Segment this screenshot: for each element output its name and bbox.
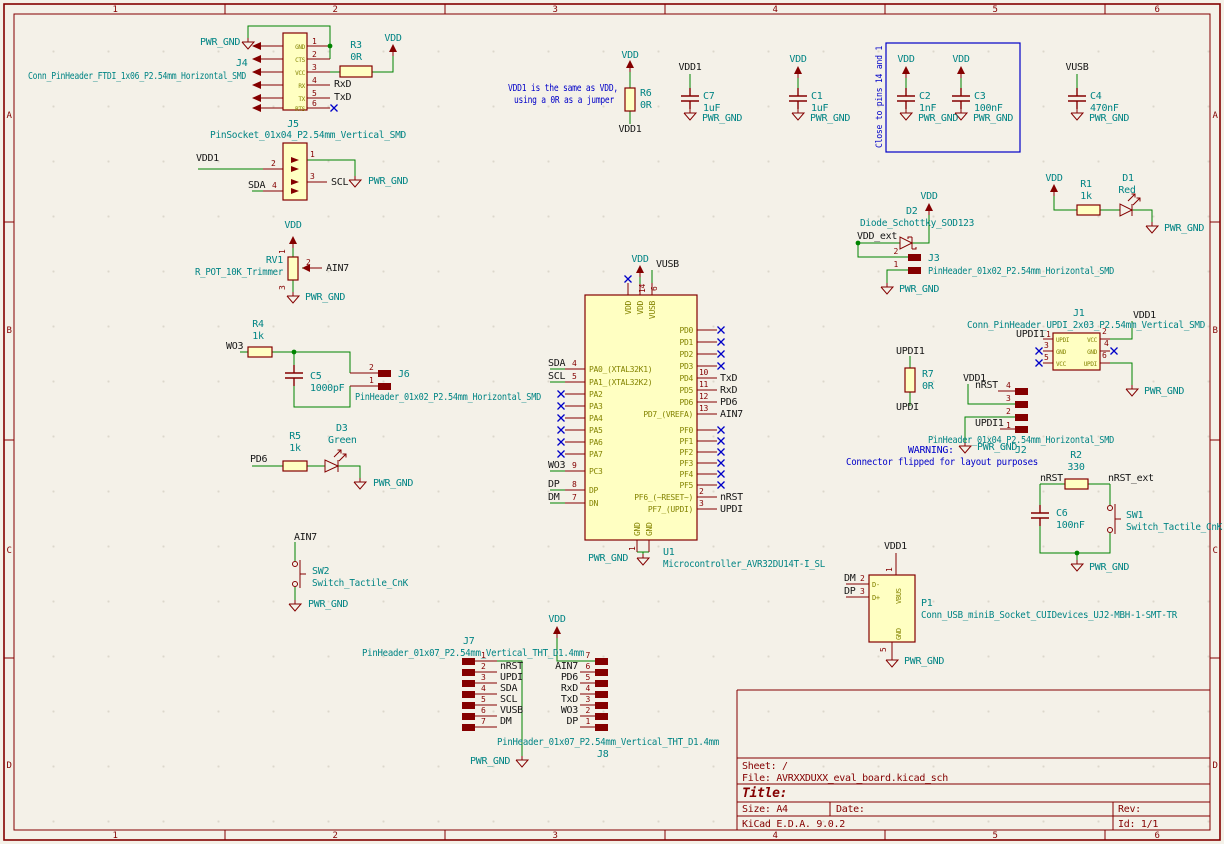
- power-label[interactable]: PWR_GND: [368, 176, 408, 187]
- pin-number: 1: [1046, 330, 1051, 339]
- border-ref: 4: [772, 5, 777, 15]
- power-label[interactable]: PWR_GND: [810, 113, 850, 124]
- net-label[interactable]: DM: [500, 716, 512, 727]
- net-label[interactable]: AIN7: [720, 409, 743, 420]
- pin-number: 3: [278, 285, 287, 290]
- id-field: Id: 1/1: [1118, 819, 1158, 830]
- mcu-u1[interactable]: [565, 283, 717, 552]
- led-d3[interactable]: [325, 450, 346, 472]
- wire-junction[interactable]: [328, 44, 333, 49]
- value-r2[interactable]: 330: [1067, 462, 1084, 473]
- no-connect-icon[interactable]: [718, 460, 725, 467]
- footprint-p1[interactable]: Conn_USB_miniB_Socket_CUIDevices_UJ2-MBH…: [921, 610, 1178, 621]
- net-label[interactable]: VDD1: [1133, 310, 1156, 321]
- no-connect-icon[interactable]: [558, 391, 565, 398]
- net-label[interactable]: nRST: [500, 661, 523, 672]
- pin-number: 1: [310, 150, 315, 159]
- gnd-symbol[interactable]: [1146, 222, 1158, 233]
- pin-number: 3: [699, 499, 704, 508]
- pin-number: 9: [572, 461, 577, 470]
- net-label[interactable]: PD6: [720, 397, 737, 408]
- net-label[interactable]: UPDI: [500, 672, 523, 683]
- note[interactable]: using a 0R as a jumper: [514, 95, 614, 106]
- rev-field: Rev:: [1118, 804, 1141, 815]
- pin-number: 10: [699, 368, 709, 377]
- net-label[interactable]: TxD: [561, 694, 578, 705]
- wire-junction[interactable]: [292, 350, 297, 355]
- pin-name: PA5: [589, 426, 603, 435]
- vdd-symbol[interactable]: [389, 44, 397, 56]
- pin-name: GND: [295, 44, 306, 51]
- border-ref: 4: [772, 831, 777, 841]
- power-label[interactable]: PWR_GND: [305, 292, 345, 303]
- resistor-r7[interactable]: [905, 368, 915, 392]
- no-connect-icon[interactable]: [331, 105, 338, 112]
- capacitor-c6[interactable]: [1031, 505, 1049, 526]
- footprint-j3[interactable]: PinHeader_01x02_P2.54mm_Horizontal_SMD: [928, 266, 1114, 277]
- resistor-r6[interactable]: [625, 88, 635, 111]
- capacitor-c1[interactable]: [789, 88, 807, 109]
- connector-j1[interactable]: [1043, 333, 1110, 370]
- gnd-symbol[interactable]: [516, 756, 528, 767]
- note[interactable]: Connector flipped for layout purposes: [846, 457, 1038, 468]
- value-c5[interactable]: 1000pF: [310, 383, 345, 394]
- border-ref: D: [1212, 761, 1217, 771]
- ref-r5[interactable]: R5: [289, 431, 301, 442]
- pin-name: PA0_(XTAL32K1): [589, 365, 652, 374]
- power-label[interactable]: VDD: [920, 191, 937, 202]
- schematic-page: Sheet: / File: AVRXXDUXX_eval_board.kica…: [0, 0, 1224, 844]
- value-d2[interactable]: Diode_Schottky_SOD123: [860, 218, 974, 229]
- power-label[interactable]: PWR_GND: [1144, 386, 1184, 397]
- gnd-symbol[interactable]: [289, 600, 301, 611]
- net-label[interactable]: nRST: [720, 492, 743, 503]
- ref-j8[interactable]: J8: [597, 749, 609, 760]
- net-label[interactable]: WO3: [226, 341, 243, 352]
- note[interactable]: WARNING:: [908, 445, 954, 456]
- pin-name: VBUS: [895, 588, 903, 604]
- no-connect-icon[interactable]: [558, 427, 565, 434]
- net-label[interactable]: nRST: [1040, 473, 1063, 484]
- led-d1[interactable]: [1120, 194, 1140, 216]
- connector-j7[interactable]: [462, 658, 497, 731]
- net-label[interactable]: TxD: [720, 373, 737, 384]
- potentiometer-rv1[interactable]: [288, 257, 322, 280]
- border-ref: 1: [112, 831, 117, 841]
- ref-r3[interactable]: R3: [350, 40, 362, 51]
- net-label[interactable]: SCL: [500, 694, 517, 705]
- capacitor-c5[interactable]: [285, 365, 303, 386]
- pin-name: RX: [298, 83, 305, 90]
- pin-name: PD3: [679, 362, 693, 371]
- net-label[interactable]: SDA: [548, 358, 565, 369]
- ref-c7[interactable]: C7: [703, 91, 715, 102]
- footprint-j4[interactable]: Conn_PinHeader_FTDI_1x06_P2.54mm_Horizon…: [28, 71, 246, 82]
- value-sw2[interactable]: Switch_Tactile_CnK: [312, 578, 408, 589]
- power-label[interactable]: PWR_GND: [899, 284, 939, 295]
- pin-number: 11: [699, 380, 709, 389]
- no-connect-icon[interactable]: [718, 339, 725, 346]
- note[interactable]: VDD1 is the same as VDD,: [508, 83, 618, 94]
- gnd-symbol[interactable]: [684, 109, 696, 120]
- pin-name: GND: [1056, 349, 1067, 356]
- ref-r7[interactable]: R7: [922, 369, 934, 380]
- value-r1[interactable]: 1k: [1080, 191, 1092, 202]
- value-d1[interactable]: Red: [1118, 185, 1135, 196]
- pin-number: 2: [860, 574, 865, 583]
- pin-number: 2: [312, 50, 317, 59]
- no-connect-icon[interactable]: [1036, 348, 1043, 355]
- ref-c4[interactable]: C4: [1090, 91, 1102, 102]
- net-label[interactable]: UPDI1: [975, 418, 1004, 429]
- ref-r4[interactable]: R4: [252, 319, 264, 330]
- pin-number: 1: [585, 717, 590, 726]
- pin-number: 3: [585, 695, 590, 704]
- title-field: Title:: [742, 786, 787, 801]
- pin-name: GND: [1087, 349, 1098, 356]
- power-label[interactable]: VDD: [548, 614, 565, 625]
- power-label[interactable]: PWR_GND: [977, 442, 1017, 453]
- usb-connector-p1[interactable]: [846, 553, 915, 656]
- pin-number: 5: [481, 695, 486, 704]
- gnd-symbol[interactable]: [792, 109, 804, 120]
- pin-name: PD1: [679, 338, 693, 347]
- gnd-symbol[interactable]: [900, 109, 912, 120]
- capacitor-c2[interactable]: [897, 88, 915, 109]
- vdd-symbol[interactable]: [957, 66, 965, 78]
- resistor-r4[interactable]: [248, 347, 272, 357]
- pin-number: 3: [312, 63, 317, 72]
- pin-number: 2: [271, 159, 276, 168]
- net-label[interactable]: DP: [844, 586, 856, 597]
- ref-d3[interactable]: D3: [336, 423, 348, 434]
- pin-name: RTS: [295, 106, 306, 113]
- pin-name: PD6: [679, 398, 693, 407]
- value-r3[interactable]: 0R: [350, 52, 363, 63]
- value-u1[interactable]: Microcontroller_AVR32DU14T-I_SL: [663, 559, 825, 570]
- net-label[interactable]: AIN7: [326, 263, 349, 274]
- generator-field: KiCad E.D.A. 9.0.2: [742, 819, 845, 830]
- pin-name: PA7: [589, 450, 603, 459]
- net-label[interactable]: VUSB: [1066, 62, 1089, 73]
- capacitor-c4[interactable]: [1068, 88, 1086, 109]
- net-label[interactable]: nRST: [975, 380, 998, 391]
- socket-j5[interactable]: [263, 143, 327, 200]
- pin-number: 3: [860, 587, 865, 596]
- power-label[interactable]: PWR_GND: [308, 599, 348, 610]
- value-r7[interactable]: 0R: [922, 381, 935, 392]
- file-name: File: AVRXXDUXX_eval_board.kicad_sch: [742, 773, 948, 784]
- ref-c2[interactable]: C2: [919, 91, 931, 102]
- vdd-symbol[interactable]: [902, 66, 910, 78]
- net-label[interactable]: DP: [567, 716, 579, 727]
- net-label[interactable]: RxD: [720, 385, 737, 396]
- no-connect-icon[interactable]: [718, 327, 725, 334]
- title-block: Sheet: / File: AVRXXDUXX_eval_board.kica…: [737, 690, 1210, 830]
- pin-name: VCC: [1087, 337, 1098, 344]
- pin-number: 2: [481, 662, 486, 671]
- pin-number: 4: [1104, 339, 1109, 348]
- connector-j8[interactable]: [580, 658, 608, 731]
- pin-number: 4: [1006, 381, 1011, 390]
- gnd-symbol[interactable]: [886, 656, 898, 667]
- no-connect-icon[interactable]: [718, 363, 725, 370]
- switch-sw2[interactable]: [293, 560, 307, 588]
- net-label[interactable]: VUSB: [656, 259, 679, 270]
- pin-name: PD7_(VREFA): [643, 410, 693, 419]
- power-label[interactable]: VDD: [284, 220, 301, 231]
- ref-j3[interactable]: J3: [928, 253, 940, 264]
- pin-name: PC3: [589, 467, 603, 476]
- pin-number: 3: [481, 673, 486, 682]
- pin-name: PD4: [679, 374, 693, 383]
- pin-name: PF5: [679, 481, 693, 490]
- pin-name: VUSB: [648, 301, 657, 320]
- ref-sw2[interactable]: SW2: [312, 566, 329, 577]
- border-ref: B: [6, 326, 11, 336]
- pin-number: 4: [572, 359, 577, 368]
- vdd-symbol[interactable]: [1050, 184, 1058, 196]
- net-label[interactable]: PD6: [250, 454, 267, 465]
- gnd-symbol[interactable]: [1071, 109, 1083, 120]
- footprint-j6[interactable]: PinHeader_01x02_P2.54mm_Horizontal_SMD: [355, 392, 541, 403]
- vdd-symbol[interactable]: [636, 265, 644, 277]
- ref-p1[interactable]: P1: [921, 598, 933, 609]
- ref-sw1[interactable]: SW1: [1126, 510, 1143, 521]
- capacitor-c7[interactable]: [681, 88, 699, 109]
- net-label[interactable]: VDD1: [884, 541, 907, 552]
- pin-number: 4: [481, 684, 486, 693]
- net-label[interactable]: WO3: [561, 705, 578, 716]
- power-label[interactable]: PWR_GND: [588, 553, 628, 564]
- border-ref: 6: [1154, 5, 1159, 15]
- net-label[interactable]: AIN7: [555, 661, 578, 672]
- pin-name: TX: [298, 96, 305, 103]
- net-label[interactable]: nRST_ext: [1108, 473, 1154, 484]
- no-connect-icon[interactable]: [718, 351, 725, 358]
- net-label[interactable]: DP: [548, 479, 560, 490]
- pin-number: 1: [885, 567, 894, 572]
- pin-name: VDD: [624, 301, 633, 315]
- resistor-r1[interactable]: [1077, 205, 1100, 215]
- power-label[interactable]: PWR_GND: [373, 478, 413, 489]
- power-label[interactable]: PWR_GND: [1089, 113, 1129, 124]
- net-label[interactable]: RxD: [334, 79, 351, 90]
- pin-number: 4: [585, 684, 590, 693]
- pin-number: 4: [312, 76, 317, 85]
- no-connect-icon[interactable]: [558, 451, 565, 458]
- ref-r6[interactable]: R6: [640, 88, 652, 99]
- vdd-symbol[interactable]: [626, 60, 634, 72]
- ref-rv1[interactable]: RV1: [266, 255, 283, 266]
- net-label[interactable]: UPDI: [720, 504, 743, 515]
- value-sw1[interactable]: Switch_Tactile_CnK: [1126, 522, 1222, 533]
- net-label[interactable]: VUSB: [500, 705, 523, 716]
- power-label[interactable]: PWR_GND: [904, 656, 944, 667]
- ref-r1[interactable]: R1: [1080, 179, 1092, 190]
- no-connect-icon[interactable]: [1111, 348, 1118, 355]
- date-field: Date:: [836, 804, 865, 815]
- pin-number: 5: [1044, 353, 1049, 362]
- value-r4[interactable]: 1k: [252, 331, 264, 342]
- net-label[interactable]: VDD1: [679, 62, 702, 73]
- pin-number: 6: [650, 286, 659, 291]
- gnd-symbol[interactable]: [349, 176, 361, 187]
- power-label[interactable]: VDD: [952, 54, 969, 65]
- footprint-j5[interactable]: PinSocket_01x04_P2.54mm_Vertical_SMD: [210, 130, 406, 141]
- ref-c5[interactable]: C5: [310, 371, 322, 382]
- pin-name: UPDI: [1056, 337, 1070, 344]
- net-label[interactable]: SCL: [331, 177, 348, 188]
- ref-r2[interactable]: R2: [1070, 450, 1082, 461]
- net-label[interactable]: UPDI1: [1016, 329, 1045, 340]
- no-connect-icon[interactable]: [558, 415, 565, 422]
- vdd-symbol[interactable]: [925, 203, 933, 215]
- pin-name: GND: [645, 522, 654, 536]
- ref-c1[interactable]: C1: [811, 91, 823, 102]
- capacitor-c3[interactable]: [952, 88, 970, 109]
- pin-name: GND: [633, 522, 642, 536]
- value-r5[interactable]: 1k: [289, 443, 301, 454]
- pin-number: 8: [572, 480, 577, 489]
- net-label[interactable]: WO3: [548, 460, 565, 471]
- pin-name: PF2: [679, 448, 693, 457]
- value-rv1[interactable]: R_POT_10K_Trimmer: [195, 267, 283, 278]
- wire-junction[interactable]: [1075, 551, 1080, 556]
- pin-name: PF4: [679, 470, 693, 479]
- no-connect-icon[interactable]: [625, 276, 632, 283]
- no-connect-icon[interactable]: [718, 438, 725, 445]
- pin-name: PD0: [679, 326, 693, 335]
- power-label[interactable]: PWR_GND: [470, 756, 510, 767]
- note[interactable]: Close to pins 14 and 1: [875, 46, 885, 148]
- no-connect-icon[interactable]: [558, 403, 565, 410]
- footprint-j7[interactable]: PinHeader_01x07_P2.54mm_Vertical_THT_D1.…: [362, 648, 584, 659]
- border-ref: 3: [552, 5, 557, 15]
- ref-c3[interactable]: C3: [974, 91, 986, 102]
- vdd-symbol[interactable]: [553, 626, 561, 638]
- connector-j3[interactable]: [908, 254, 921, 274]
- net-label[interactable]: RxD: [561, 683, 578, 694]
- pin-name: PF6_(~RESET~): [634, 493, 693, 502]
- border-ref: C: [6, 546, 11, 556]
- net-label[interactable]: SDA: [500, 683, 517, 694]
- pin-number: 2: [585, 706, 590, 715]
- net-label[interactable]: VDD1: [196, 153, 219, 164]
- net-label[interactable]: UPDI1: [896, 346, 925, 357]
- net-label[interactable]: DM: [844, 573, 856, 584]
- pin-name: DP: [589, 486, 599, 495]
- footprint-j8[interactable]: PinHeader_01x07_P2.54mm_Vertical_THT_D1.…: [497, 737, 719, 748]
- resistor-r3[interactable]: [340, 66, 372, 77]
- pin-number: 3: [1006, 394, 1011, 403]
- power-label[interactable]: VDD: [789, 54, 806, 65]
- power-label[interactable]: VDD: [384, 33, 401, 44]
- pin-number: 5: [879, 647, 888, 652]
- pin-number: 2: [1006, 407, 1011, 416]
- power-label[interactable]: PWR_GND: [200, 37, 240, 48]
- no-connect-icon[interactable]: [1036, 360, 1043, 367]
- no-connect-icon[interactable]: [718, 482, 725, 489]
- pin-name: PF3: [679, 459, 693, 468]
- gnd-symbol[interactable]: [354, 478, 366, 489]
- pin-number: 2: [306, 258, 311, 267]
- switch-sw1[interactable]: [1108, 504, 1122, 534]
- net-label[interactable]: UPDI: [896, 402, 919, 413]
- power-label[interactable]: PWR_GND: [702, 113, 742, 124]
- power-label[interactable]: PWR_GND: [1164, 223, 1204, 234]
- pin-name: D+: [872, 594, 880, 602]
- gnd-symbol[interactable]: [287, 292, 299, 303]
- value-c6[interactable]: 100nF: [1056, 520, 1085, 531]
- power-label[interactable]: VDD: [621, 50, 638, 61]
- footprint-j1[interactable]: Conn_PinHeader_UPDI_2x03_P2.54mm_Vertica…: [967, 320, 1205, 331]
- pin-number: 3: [310, 172, 315, 181]
- net-label[interactable]: PD6: [561, 672, 578, 683]
- ref-u1[interactable]: U1: [663, 547, 675, 558]
- power-label[interactable]: VDD: [897, 54, 914, 65]
- net-label[interactable]: TxD: [334, 92, 351, 103]
- no-connect-icon[interactable]: [718, 471, 725, 478]
- value-d3[interactable]: Green: [328, 435, 357, 446]
- power-label[interactable]: VDD: [631, 254, 648, 265]
- no-connect-icon[interactable]: [558, 439, 565, 446]
- value-r6[interactable]: 0R: [640, 100, 653, 111]
- gnd-symbol[interactable]: [881, 283, 893, 294]
- ref-c6[interactable]: C6: [1056, 508, 1068, 519]
- net-label[interactable]: AIN7: [294, 532, 317, 543]
- net-label[interactable]: DM: [548, 492, 560, 503]
- power-label[interactable]: VDD: [1045, 173, 1062, 184]
- net-label[interactable]: SDA: [248, 180, 265, 191]
- pin-name: PA6: [589, 438, 603, 447]
- pin-number: 6: [585, 662, 590, 671]
- vdd-symbol[interactable]: [794, 66, 802, 78]
- net-label[interactable]: VDD1: [619, 124, 642, 135]
- ref-d1[interactable]: D1: [1122, 173, 1134, 184]
- border-ref: C: [1212, 546, 1217, 556]
- vdd-symbol[interactable]: [289, 236, 297, 248]
- power-label[interactable]: PWR_GND: [973, 113, 1013, 124]
- pin-number: 2: [699, 487, 704, 496]
- gnd-symbol[interactable]: [637, 554, 649, 565]
- resistor-r2[interactable]: [1065, 479, 1088, 489]
- net-label[interactable]: SCL: [548, 371, 565, 382]
- no-connect-icon[interactable]: [718, 427, 725, 434]
- ref-j6[interactable]: J6: [398, 369, 410, 380]
- power-label[interactable]: PWR_GND: [918, 113, 958, 124]
- gnd-symbol[interactable]: [1071, 560, 1083, 571]
- ref-j7[interactable]: J7: [463, 636, 475, 647]
- ref-j4[interactable]: J4: [236, 58, 248, 69]
- ref-d2[interactable]: D2: [906, 206, 918, 217]
- pin-number: 1: [481, 651, 486, 660]
- resistor-r5[interactable]: [283, 461, 307, 471]
- border-ref: 2: [332, 831, 337, 841]
- gnd-symbol[interactable]: [242, 38, 254, 49]
- pin-number: 6: [481, 706, 486, 715]
- net-label[interactable]: VDD_ext: [857, 231, 897, 242]
- ref-j1[interactable]: J1: [1073, 308, 1085, 319]
- ref-j5[interactable]: J5: [287, 119, 299, 130]
- gnd-symbol[interactable]: [1126, 385, 1138, 396]
- power-label[interactable]: PWR_GND: [1089, 562, 1129, 573]
- no-connect-icon[interactable]: [718, 449, 725, 456]
- pin-number: 5: [572, 372, 577, 381]
- pin-number: 1: [369, 376, 374, 385]
- connector-j4[interactable]: [252, 33, 330, 112]
- ref-j2[interactable]: J2: [1015, 445, 1027, 456]
